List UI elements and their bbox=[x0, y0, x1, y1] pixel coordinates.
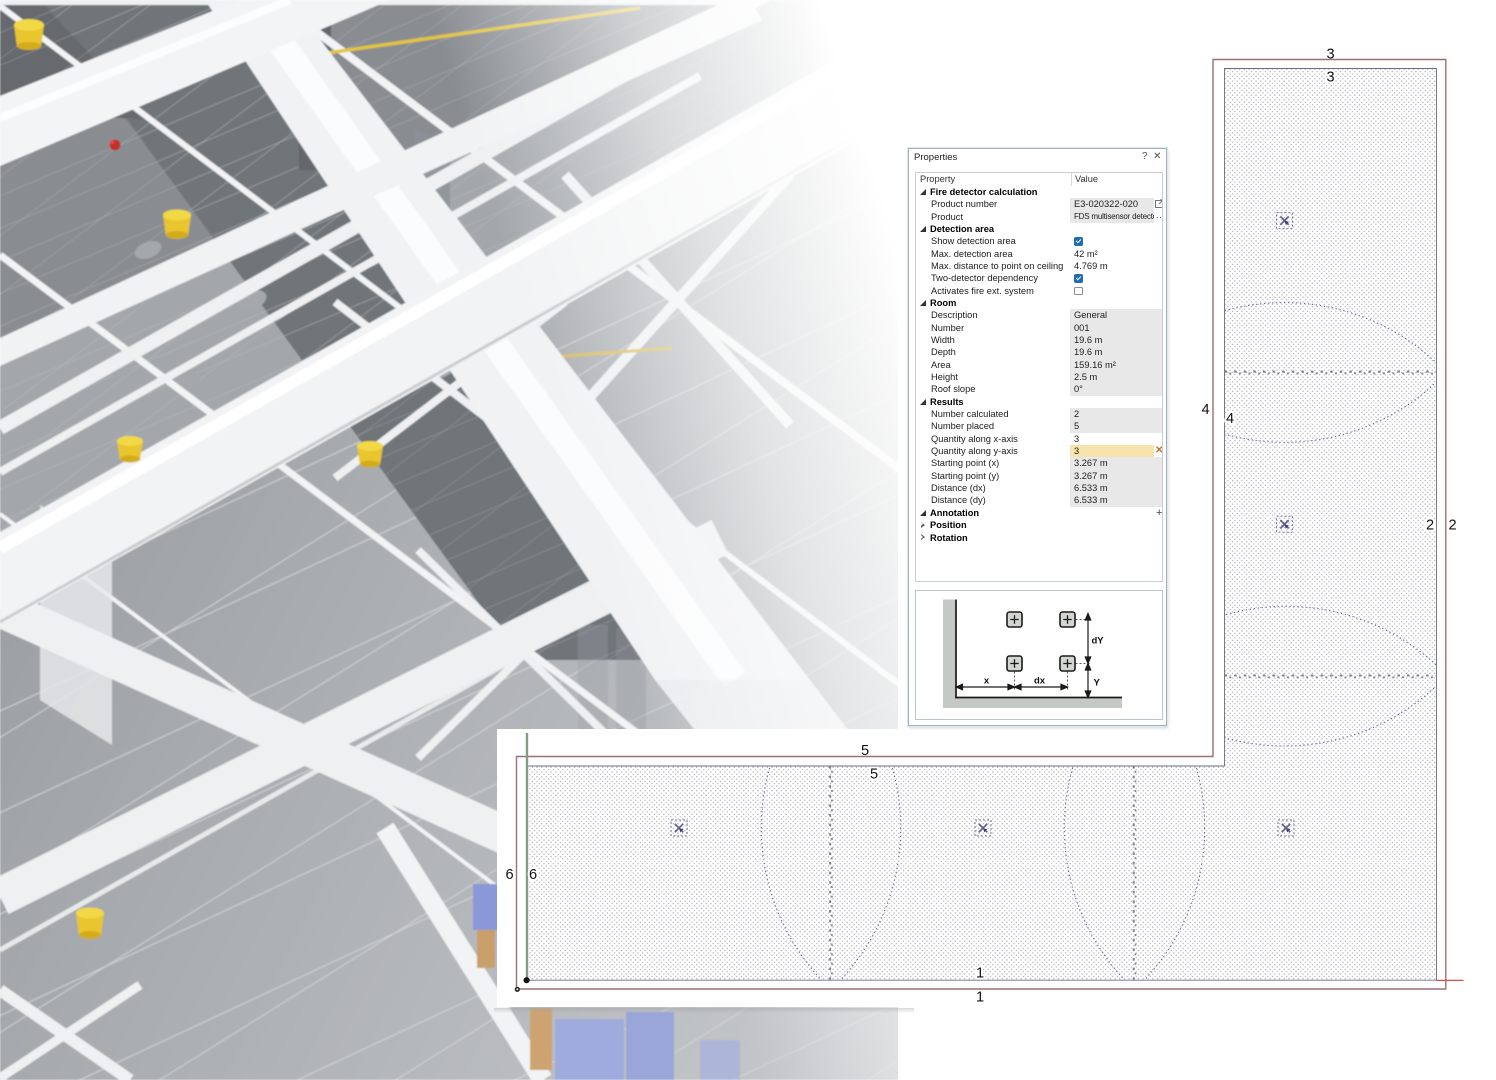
svg-text:dY: dY bbox=[1092, 636, 1105, 647]
svg-text:3: 3 bbox=[1326, 69, 1334, 85]
svg-text:dx: dx bbox=[1034, 676, 1046, 687]
svg-text:2: 2 bbox=[1426, 518, 1434, 534]
svg-text:4: 4 bbox=[1201, 402, 1209, 418]
svg-text:6: 6 bbox=[529, 867, 537, 883]
svg-text:1: 1 bbox=[976, 990, 984, 1006]
svg-text:4: 4 bbox=[1226, 411, 1234, 427]
svg-text:2: 2 bbox=[1448, 518, 1456, 534]
svg-text:5: 5 bbox=[870, 766, 878, 782]
svg-text:1: 1 bbox=[976, 966, 984, 982]
svg-text:x: x bbox=[984, 676, 990, 687]
svg-text:6: 6 bbox=[505, 867, 513, 883]
svg-text:5: 5 bbox=[861, 743, 869, 759]
svg-text:3: 3 bbox=[1326, 47, 1334, 63]
svg-text:Y: Y bbox=[1094, 678, 1101, 689]
